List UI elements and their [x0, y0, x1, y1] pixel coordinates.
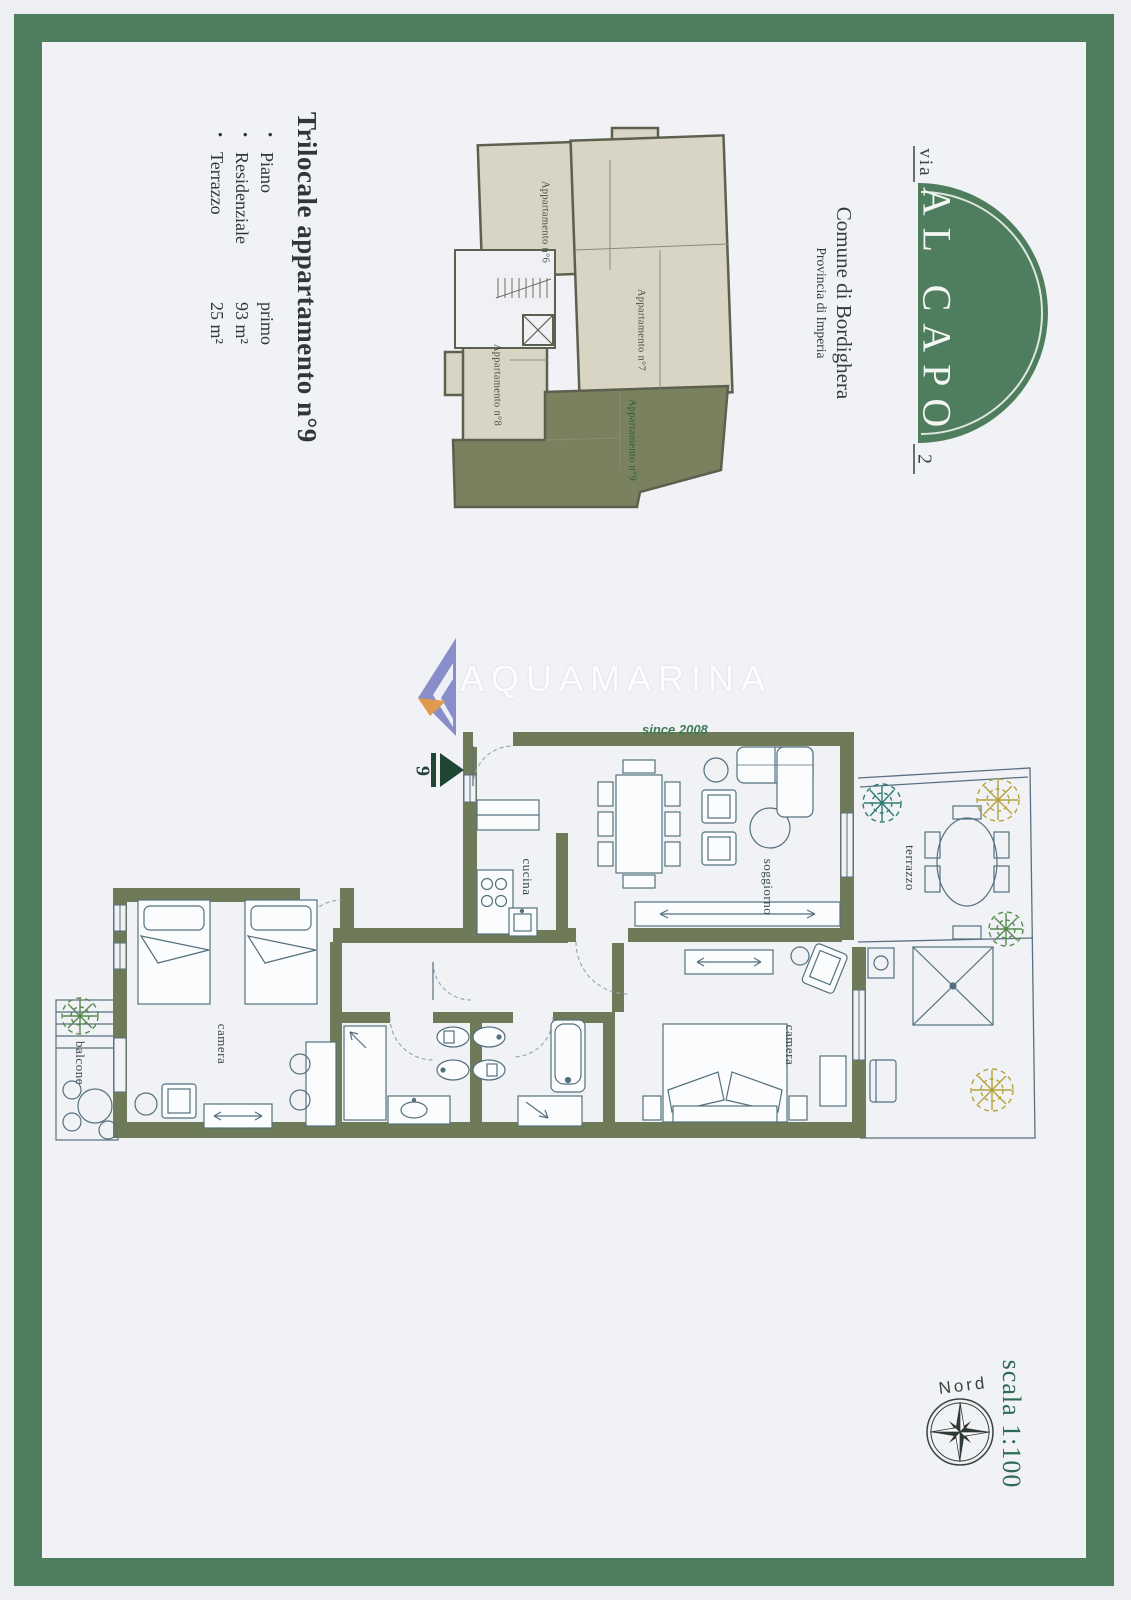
detail-value: 93 m²	[231, 302, 252, 412]
detail-value: 25 m²	[206, 302, 227, 412]
aquamarina-logo-icon	[418, 638, 456, 736]
floorplan-sheet: via AL CAPO 2 Comune di Bordighera Provi…	[0, 0, 1131, 1600]
detail-label: Terrazzo	[206, 152, 227, 302]
room-label-soggiorno: soggiorno	[760, 859, 776, 916]
room-label-camera-right: camera	[782, 1025, 798, 1066]
bathroom-fixtures	[344, 1020, 585, 1126]
detail-label: Piano	[256, 152, 277, 302]
entry-apartment-number: 9	[411, 766, 434, 776]
detail-label: Residenziale	[231, 152, 252, 302]
logo-name-text: AL CAPO	[914, 187, 961, 440]
bedroom-left-furniture	[135, 900, 336, 1128]
bullet-icon: •	[256, 132, 277, 152]
door-leaves	[300, 746, 473, 1000]
watermark-tagline: REAL ESTATE AGENCY	[512, 703, 708, 717]
listing-block: Trilocale appartamento n°9 • Piano primo…	[192, 112, 322, 492]
overview-label-apartment-8: Appartamento n°8	[492, 344, 503, 426]
watermark-since: since 2008	[642, 722, 708, 737]
room-label-balcone: balcone	[72, 1041, 88, 1085]
living-room-furniture	[598, 747, 840, 926]
bedroom-right-furniture	[643, 943, 848, 1122]
bullet-icon: •	[206, 132, 227, 152]
municipality-province: Provincia di Imperia	[813, 178, 829, 428]
detail-row-terrazzo: • Terrazzo 25 m²	[206, 132, 227, 492]
entry-marker-icon	[431, 753, 464, 787]
compass-rose-icon	[927, 1399, 993, 1465]
logo-number-text: 2	[913, 454, 936, 464]
terrazzo-outline	[858, 768, 1035, 1138]
overview-label-apartment-6: Appartamento n°6	[540, 181, 551, 263]
detail-row-piano: • Piano primo	[256, 132, 277, 492]
room-label-camera-left: camera	[214, 1024, 230, 1065]
detail-value: primo	[256, 302, 277, 412]
scale-label: scala 1:100	[996, 1360, 1026, 1489]
logo-via-text: via	[914, 148, 936, 177]
municipality-block: Comune di Bordighera Provincia di Imperi…	[808, 178, 856, 428]
detail-row-residenziale: • Residenziale 93 m²	[231, 132, 252, 492]
room-label-terrazzo: terrazzo	[902, 845, 918, 891]
overview-plan	[445, 128, 732, 507]
listing-title: Trilocale appartamento n°9	[291, 112, 322, 492]
overview-label-apartment-7: Appartamento n°7	[636, 289, 647, 371]
room-label-cucina: cucina	[519, 859, 535, 896]
municipality-name: Comune di Bordighera	[831, 178, 856, 428]
overview-label-apartment-9: Appartamento n°9	[627, 399, 638, 481]
bullet-icon: •	[231, 132, 252, 152]
floor-plan-graphics	[0, 0, 1131, 1600]
watermark-brand: AQUAMARINA	[460, 658, 772, 700]
